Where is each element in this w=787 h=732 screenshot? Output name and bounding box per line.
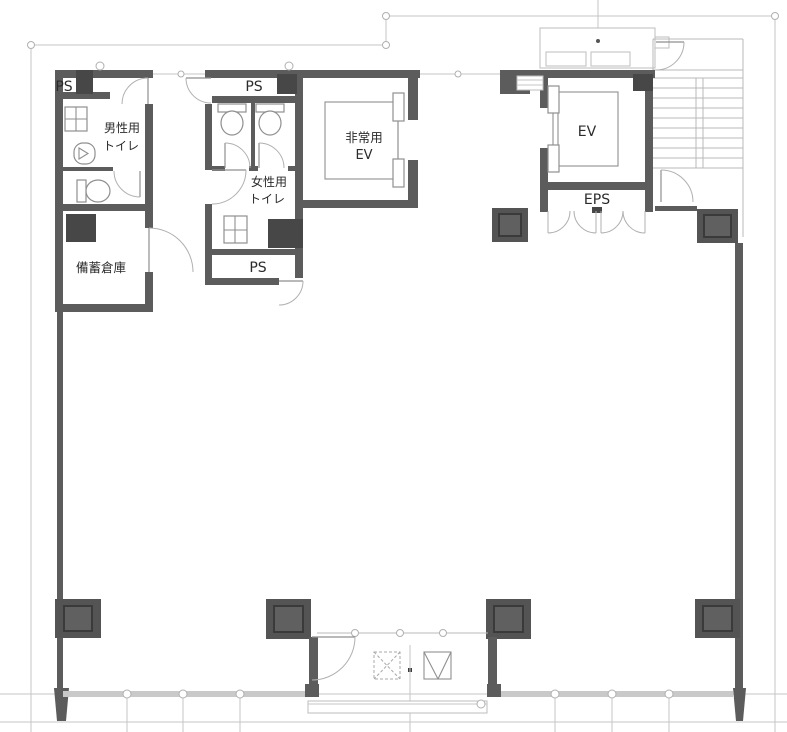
label-eps: EPS: [584, 192, 610, 208]
mat-symbol: [424, 652, 451, 679]
door-swing: [225, 143, 250, 168]
duct-fill: [66, 214, 96, 242]
facade-marker: [397, 630, 404, 637]
facade-marker: [352, 630, 359, 637]
wall-segment: [205, 278, 279, 285]
vent-marker: [285, 62, 293, 70]
column-core: [494, 606, 523, 632]
wall-corner-jamb: [733, 688, 746, 721]
wall-segment: [205, 70, 420, 78]
pipe-shaft-fill: [277, 74, 297, 94]
wall-segment: [55, 304, 153, 312]
equipment-unit: [546, 52, 586, 66]
wall-segment: [212, 249, 303, 255]
floor-plan-canvas: PS 男性用 トイレ PS 女性用 トイレ PS 備蓄倉庫 非常用 EV EV …: [0, 0, 787, 732]
label-ps-left: PS: [55, 79, 72, 95]
elevator-door-jamb: [548, 145, 559, 172]
wall-segment: [145, 104, 153, 228]
bifold-swing: [548, 211, 570, 233]
wall-segment: [408, 160, 418, 208]
wall-segment: [212, 96, 296, 103]
door-swing: [186, 78, 211, 103]
column-core: [274, 606, 303, 632]
wall-segment: [145, 70, 153, 78]
entrance-jamb-foot: [487, 684, 501, 697]
wall-segment: [145, 272, 153, 312]
floor-plan-page: PS 男性用 トイレ PS 女性用 トイレ PS 備蓄倉庫 非常用 EV EV …: [0, 0, 787, 732]
door-swing: [259, 143, 284, 168]
door-swing: [312, 637, 355, 680]
mullion-marker: [179, 690, 187, 698]
grid-marker: [455, 71, 461, 77]
toilet-bowl: [86, 180, 110, 202]
entrance-jamb: [488, 637, 497, 687]
boundary-marker: [383, 13, 390, 20]
wall-segment: [63, 167, 113, 171]
column-core: [704, 215, 731, 237]
wall-segment: [251, 103, 255, 167]
mat-symbol-diagonal: [438, 652, 451, 679]
wall-segment: [288, 166, 296, 171]
elevator-door-jamb: [548, 86, 559, 113]
label-emergency-ev-2: EV: [355, 148, 372, 163]
rooftop-equipment: [540, 0, 669, 68]
door-swing: [279, 281, 303, 305]
duct-fill: [268, 219, 303, 248]
equipment-unit: [591, 52, 630, 66]
column-core: [64, 606, 92, 631]
column-core: [703, 606, 732, 631]
label-emergency-ev-1: 非常用: [345, 130, 383, 145]
entrance: [305, 630, 501, 732]
facade-marker: [440, 630, 447, 637]
toilet-bowl: [259, 111, 281, 135]
louver: [517, 76, 543, 90]
label-storage: 備蓄倉庫: [76, 260, 126, 275]
wall-segment: [655, 206, 697, 211]
wall-segment: [295, 200, 418, 208]
bifold-swing: [623, 211, 645, 233]
pipe-shaft-fill: [76, 70, 93, 94]
wall-segment: [55, 70, 63, 312]
label-mens-toilet-1: 男性用: [104, 121, 140, 135]
label-ps-mid-top: PS: [245, 79, 262, 95]
columns: [55, 208, 740, 639]
toilet-tank: [77, 180, 86, 202]
grid-marker: [178, 71, 184, 77]
mullion-marker: [551, 690, 559, 698]
boundary-marker: [772, 13, 779, 20]
label-mens-toilet-2: トイレ: [103, 139, 139, 153]
wall-segment: [540, 190, 548, 212]
elevator-door-jamb: [393, 159, 404, 187]
vent-marker: [96, 62, 104, 70]
label-womens-toilet-1: 女性用: [251, 174, 287, 189]
canopy-marker: [477, 700, 485, 708]
wall-segment: [408, 70, 418, 120]
labels: PS 男性用 トイレ PS 女性用 トイレ PS 備蓄倉庫 非常用 EV EV …: [55, 79, 610, 276]
wall-segment: [205, 104, 212, 170]
mullion-marker: [123, 690, 131, 698]
mullion-marker: [608, 690, 616, 698]
boundary-marker: [28, 42, 35, 49]
column-core: [499, 214, 521, 236]
toilet-bowl: [221, 111, 243, 135]
label-womens-toilet-2: トイレ: [249, 192, 285, 206]
elevator-door-jamb: [393, 93, 404, 121]
label-ps-mid-bottom: PS: [249, 260, 266, 276]
wall-corner-fill: [633, 74, 653, 91]
mullion-marker: [665, 690, 673, 698]
mat-symbol-diagonal: [424, 652, 438, 679]
bifold-swing: [574, 211, 596, 233]
wall-segment: [55, 70, 153, 78]
wall-segment: [540, 182, 653, 190]
door-swing: [122, 78, 148, 104]
mullion-marker: [236, 690, 244, 698]
entrance-canopy: [308, 701, 487, 713]
entrance-jamb-foot: [305, 684, 319, 697]
bifold-swing: [601, 211, 623, 233]
door-swing: [212, 170, 246, 204]
door-swing: [149, 228, 193, 272]
urinal: [74, 143, 95, 164]
boundary-marker: [383, 42, 390, 49]
wall-segment: [63, 204, 145, 211]
label-ev: EV: [578, 124, 597, 140]
equipment-dot: [596, 39, 600, 43]
wall-segment: [205, 204, 212, 278]
wall-segment: [645, 190, 653, 212]
door-swing: [661, 170, 693, 202]
louver-frame: [517, 76, 543, 90]
door-swing: [114, 171, 140, 197]
